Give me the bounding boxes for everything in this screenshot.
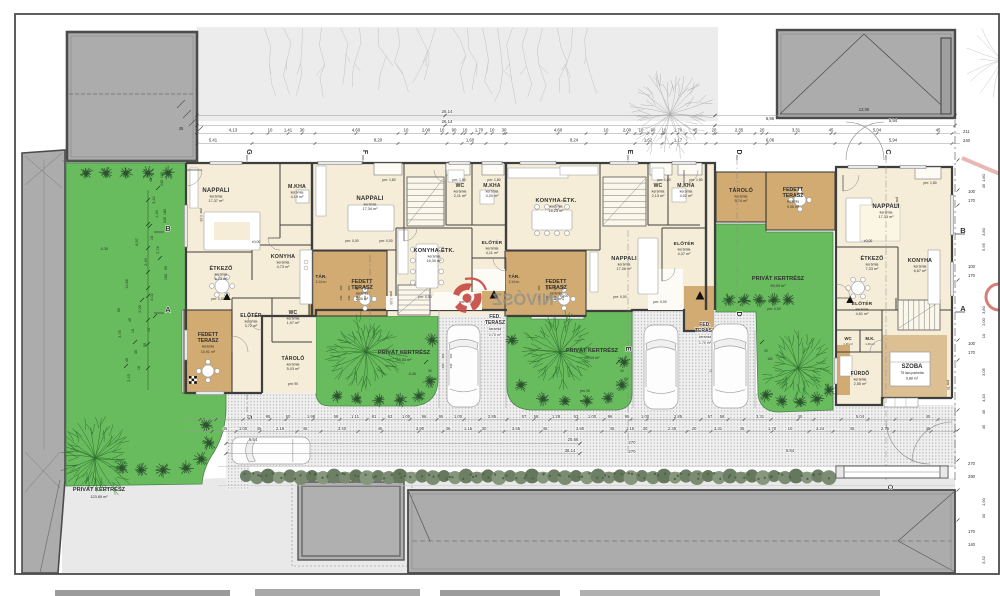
- svg-text:E: E: [624, 347, 631, 352]
- svg-text:kerámia: kerámia: [210, 194, 223, 198]
- svg-text:100: 100: [561, 285, 565, 290]
- svg-text:±0,00: ±0,00: [864, 239, 873, 243]
- svg-text:100: 100: [968, 189, 976, 194]
- svg-text:1,40: 1,40: [155, 210, 159, 217]
- svg-text:1,11: 1,11: [351, 414, 360, 419]
- svg-text:C: C: [884, 149, 891, 154]
- svg-text:170: 170: [968, 350, 976, 355]
- svg-text:1,80: 1,80: [981, 173, 986, 182]
- svg-text:±0,00: ±0,00: [252, 240, 261, 244]
- svg-text:SZOBA: SZOBA: [902, 364, 924, 370]
- svg-text:2,11 m²: 2,11 m²: [454, 194, 467, 198]
- svg-text:pm: 0,00: pm: 0,00: [767, 307, 780, 311]
- svg-text:pm: 0,00: pm: 0,00: [345, 239, 358, 243]
- svg-text:1,70 m²: 1,70 m²: [699, 341, 712, 345]
- svg-text:10: 10: [131, 329, 135, 333]
- svg-text:1,41: 1,41: [284, 128, 293, 133]
- svg-text:45: 45: [125, 358, 129, 362]
- svg-text:90: 90: [764, 349, 768, 353]
- svg-text:PRIVÁT KERTRÉSZ: PRIVÁT KERTRÉSZ: [566, 346, 619, 354]
- svg-text:TÁR.: TÁR.: [315, 273, 326, 280]
- svg-text:100: 100: [363, 285, 367, 290]
- svg-text:ÉTKEZŐ: ÉTKEZŐ: [209, 264, 232, 272]
- svg-text:WC: WC: [456, 183, 465, 189]
- svg-text:10: 10: [639, 128, 644, 133]
- svg-text:100: 100: [553, 285, 557, 290]
- svg-text:kerámia: kerámia: [854, 377, 867, 381]
- svg-text:30: 30: [482, 426, 487, 431]
- svg-text:4,37 m²: 4,37 m²: [678, 252, 692, 256]
- svg-text:45: 45: [850, 426, 855, 431]
- svg-text:F: F: [361, 150, 368, 155]
- svg-text:KONYHA: KONYHA: [271, 254, 296, 260]
- svg-text:FÜRDŐ: FÜRDŐ: [851, 370, 870, 377]
- svg-text:150: 150: [164, 274, 168, 280]
- svg-text:10: 10: [981, 333, 986, 338]
- svg-text:pm: 1,80: pm: 1,80: [382, 178, 395, 182]
- svg-text:90: 90: [452, 128, 457, 133]
- svg-text:pm: 1,80: pm: 1,80: [452, 178, 465, 182]
- svg-text:58: 58: [534, 414, 539, 419]
- svg-text:kerámia: kerámia: [699, 335, 711, 339]
- svg-text:10: 10: [662, 128, 667, 133]
- svg-text:WC: WC: [289, 310, 298, 316]
- svg-text:2,14 m²: 2,14 m²: [509, 280, 520, 284]
- svg-text:45: 45: [798, 414, 803, 419]
- svg-text:D: D: [735, 311, 742, 316]
- svg-text:95: 95: [266, 414, 271, 419]
- svg-text:M.KHA: M.KHA: [483, 183, 501, 189]
- svg-text:1,70: 1,70: [768, 426, 777, 431]
- svg-text:TERASZ: TERASZ: [783, 193, 805, 199]
- svg-text:M.K.: M.K.: [865, 336, 874, 341]
- svg-text:240: 240: [355, 295, 359, 300]
- svg-text:4,73 m²: 4,73 m²: [277, 265, 291, 269]
- svg-text:150: 150: [767, 357, 773, 361]
- svg-text:pm: 1,80: pm: 1,80: [689, 178, 702, 182]
- svg-text:2,19: 2,19: [276, 426, 285, 431]
- svg-text:1,90: 1,90: [981, 497, 986, 506]
- svg-text:2,76: 2,76: [156, 246, 160, 253]
- svg-text:3,31: 3,31: [792, 128, 801, 133]
- svg-text:10: 10: [440, 128, 445, 133]
- svg-text:C: C: [886, 484, 893, 489]
- svg-text:NIVÓSZ: NIVÓSZ: [492, 290, 553, 309]
- svg-text:100: 100: [968, 341, 976, 346]
- svg-text:kerámia: kerámia: [678, 247, 691, 251]
- svg-text:100: 100: [545, 285, 549, 290]
- svg-text:30: 30: [643, 426, 648, 431]
- svg-text:2,40: 2,40: [144, 258, 148, 265]
- svg-text:58: 58: [720, 414, 725, 419]
- svg-text:26,14: 26,14: [442, 119, 453, 124]
- svg-text:pm: 90: pm: 90: [895, 197, 899, 207]
- svg-text:3,31: 3,31: [756, 414, 765, 419]
- svg-text:kerámia: kerámia: [486, 189, 499, 193]
- svg-text:9,88 m²: 9,88 m²: [906, 377, 919, 381]
- svg-text:27: 27: [247, 414, 252, 419]
- svg-text:pm: 0,00: pm: 0,00: [653, 300, 666, 304]
- svg-text:pm: 90: pm: 90: [288, 382, 298, 386]
- svg-text:3,80: 3,80: [981, 305, 986, 314]
- svg-text:5,84: 5,84: [786, 448, 795, 453]
- svg-text:270: 270: [628, 440, 636, 445]
- svg-text:30: 30: [981, 513, 986, 518]
- svg-text:150: 150: [431, 377, 437, 381]
- svg-text:KONYHA-ÉTK.: KONYHA-ÉTK.: [413, 246, 454, 254]
- svg-text:ill.: ill.: [366, 346, 369, 350]
- svg-text:kerámia: kerámia: [202, 345, 214, 349]
- svg-text:3,55: 3,55: [512, 426, 521, 431]
- svg-text:5,94: 5,94: [889, 118, 898, 123]
- svg-text:20: 20: [692, 426, 697, 431]
- svg-text:2,00: 2,00: [981, 317, 986, 326]
- svg-text:kerámia: kerámia: [454, 189, 467, 193]
- svg-text:45: 45: [926, 414, 931, 419]
- svg-text:1,00: 1,00: [402, 414, 411, 419]
- svg-text:100: 100: [347, 285, 351, 290]
- svg-text:pm: 70: pm: 70: [946, 380, 950, 390]
- svg-text:4,00 m²: 4,00 m²: [486, 194, 500, 198]
- svg-text:211: 211: [963, 129, 970, 134]
- svg-text:kerámia: kerámia: [856, 307, 869, 311]
- svg-text:1,00: 1,00: [239, 426, 248, 431]
- svg-text:M.KHA: M.KHA: [288, 184, 306, 190]
- svg-text:TERASZ: TERASZ: [198, 338, 220, 344]
- svg-text:100: 100: [537, 285, 541, 290]
- svg-text:48,44 m²: 48,44 m²: [585, 356, 601, 360]
- svg-text:4,61 m²: 4,61 m²: [856, 312, 870, 316]
- svg-text:63: 63: [388, 414, 393, 419]
- svg-text:kerámia: kerámia: [652, 189, 665, 193]
- svg-text:pm: 1,80: pm: 1,80: [487, 178, 500, 182]
- svg-text:NAPPALI: NAPPALI: [202, 188, 229, 194]
- svg-text:96: 96: [608, 414, 613, 419]
- svg-text:17,37 m²: 17,37 m²: [209, 199, 225, 203]
- svg-text:kerámia: kerámia: [489, 327, 501, 331]
- svg-text:10: 10: [604, 128, 609, 133]
- svg-text:20: 20: [712, 128, 717, 133]
- svg-text:16,30 m²: 16,30 m²: [427, 259, 443, 263]
- svg-text:81: 81: [372, 414, 377, 419]
- svg-text:45: 45: [829, 128, 834, 133]
- svg-text:ÉTKEZŐ: ÉTKEZŐ: [860, 254, 883, 262]
- svg-text:1,60: 1,60: [466, 138, 475, 143]
- svg-text:20: 20: [760, 128, 765, 133]
- svg-text:A: A: [165, 305, 171, 314]
- svg-text:6,67 m²: 6,67 m²: [914, 269, 928, 273]
- svg-text:2,85: 2,85: [488, 414, 497, 419]
- svg-text:3,05: 3,05: [981, 367, 986, 376]
- svg-text:6,54: 6,54: [249, 437, 258, 442]
- svg-text:8,24: 8,24: [570, 138, 579, 143]
- svg-text:11,66: 11,66: [125, 279, 129, 288]
- svg-text:D: D: [735, 149, 742, 154]
- svg-text:pm: 0,00: pm: 0,00: [211, 297, 224, 301]
- svg-text:WC: WC: [844, 336, 852, 341]
- svg-text:kerámia: kerámia: [735, 194, 748, 198]
- svg-text:6,57: 6,57: [135, 238, 139, 245]
- svg-text:kerámia: kerámia: [287, 316, 300, 320]
- svg-text:kerámia: kerámia: [215, 272, 228, 276]
- svg-text:5,41: 5,41: [209, 138, 218, 143]
- svg-text:1,00: 1,00: [588, 414, 597, 419]
- svg-text:270: 270: [628, 449, 636, 454]
- svg-text:90: 90: [651, 128, 656, 133]
- svg-text:270: 270: [968, 461, 976, 466]
- svg-text:5,04: 5,04: [873, 128, 882, 133]
- svg-text:7,33 m²: 7,33 m²: [866, 267, 880, 271]
- svg-text:95: 95: [439, 414, 444, 419]
- svg-text:kerámia: kerámia: [618, 262, 631, 266]
- svg-text:95: 95: [625, 414, 630, 419]
- svg-text:16,23 m²: 16,23 m²: [549, 209, 565, 213]
- svg-text:3,42: 3,42: [152, 196, 156, 203]
- svg-text:3,90: 3,90: [576, 426, 585, 431]
- svg-text:25,66: 25,66: [568, 437, 579, 442]
- svg-text:290: 290: [968, 474, 976, 479]
- svg-text:4,60: 4,60: [554, 128, 563, 133]
- svg-text:1,62: 1,62: [644, 138, 653, 143]
- svg-text:57: 57: [708, 414, 713, 419]
- svg-text:45: 45: [149, 178, 153, 182]
- svg-text:10: 10: [463, 128, 468, 133]
- svg-text:NAPPALI: NAPPALI: [356, 196, 383, 202]
- svg-text:1,15: 1,15: [464, 426, 473, 431]
- svg-text:1,97 m²: 1,97 m²: [287, 321, 301, 325]
- svg-text:10: 10: [147, 328, 151, 332]
- svg-text:1,00: 1,00: [454, 414, 463, 419]
- svg-text:4,13: 4,13: [229, 128, 238, 133]
- svg-text:46: 46: [446, 426, 451, 431]
- svg-text:26,14: 26,14: [442, 109, 453, 114]
- svg-text:45: 45: [693, 128, 698, 133]
- svg-text:2,35: 2,35: [668, 426, 677, 431]
- svg-text:50: 50: [143, 343, 147, 347]
- svg-text:50,09 m²: 50,09 m²: [771, 284, 787, 288]
- svg-text:46,53 m²: 46,53 m²: [397, 358, 413, 362]
- svg-text:G: G: [245, 149, 252, 155]
- svg-text:kerámia: kerámia: [428, 254, 441, 258]
- svg-text:6,06: 6,06: [766, 138, 775, 143]
- svg-text:123,89 m²: 123,89 m²: [90, 495, 108, 499]
- svg-text:pm: 90: pm: 90: [580, 389, 590, 393]
- svg-text:2,00: 2,00: [623, 128, 632, 133]
- svg-text:17,33 m²: 17,33 m²: [879, 215, 895, 219]
- svg-text:5,95: 5,95: [981, 242, 986, 251]
- svg-text:16: 16: [150, 236, 154, 240]
- svg-text:TÁR.: TÁR.: [508, 273, 519, 280]
- svg-text:45: 45: [981, 183, 986, 188]
- svg-text:240: 240: [449, 363, 453, 368]
- svg-text:100: 100: [968, 264, 976, 269]
- svg-text:10,91 m²: 10,91 m²: [201, 350, 216, 354]
- svg-text:pm: 1,80: pm: 1,80: [923, 181, 936, 185]
- svg-text:M.KHA: M.KHA: [677, 183, 695, 189]
- svg-text:pm: 1,80: pm: 1,80: [657, 178, 670, 182]
- svg-text:ELŐTÉR: ELŐTÉR: [240, 311, 262, 319]
- svg-text:50: 50: [286, 414, 291, 419]
- svg-text:-0,30: -0,30: [100, 247, 108, 251]
- svg-text:1,70 m²: 1,70 m²: [489, 333, 502, 337]
- svg-text:E: E: [626, 150, 633, 155]
- svg-text:240: 240: [363, 295, 367, 300]
- svg-text:45: 45: [179, 126, 184, 131]
- svg-text:PRIVÁT KERTRÉSZ: PRIVÁT KERTRÉSZ: [73, 485, 126, 493]
- svg-text:kerámia: kerámia: [287, 362, 300, 366]
- svg-text:38,14: 38,14: [565, 448, 576, 453]
- svg-text:90: 90: [117, 308, 121, 312]
- svg-text:4,19 m²: 4,19 m²: [291, 195, 305, 199]
- svg-text:NAPPALI: NAPPALI: [611, 256, 637, 262]
- svg-text:3,31: 3,31: [714, 426, 723, 431]
- svg-text:45: 45: [740, 426, 745, 431]
- svg-text:pm: 0,00: pm: 0,00: [379, 239, 392, 243]
- svg-text:1,70: 1,70: [475, 128, 484, 133]
- svg-text:pm: 0,00: pm: 0,00: [199, 208, 203, 221]
- svg-text:10: 10: [268, 128, 273, 133]
- svg-text:kerámia: kerámia: [787, 200, 799, 204]
- svg-text:170: 170: [968, 273, 976, 278]
- svg-text:10: 10: [404, 128, 409, 133]
- svg-text:2,10: 2,10: [127, 374, 131, 381]
- svg-text:16: 16: [137, 366, 141, 370]
- svg-text:2,13 m²: 2,13 m²: [652, 194, 666, 198]
- svg-text:3,80: 3,80: [981, 227, 986, 236]
- svg-text:3,72 m²: 3,72 m²: [245, 324, 259, 328]
- svg-text:9,05 m²: 9,05 m²: [787, 205, 800, 209]
- svg-text:3,40: 3,40: [338, 426, 347, 431]
- svg-text:140: 140: [968, 542, 976, 547]
- svg-text:45: 45: [936, 128, 941, 133]
- svg-text:90: 90: [164, 266, 168, 270]
- svg-text:100: 100: [355, 285, 359, 290]
- svg-text:12,00: 12,00: [859, 107, 870, 112]
- svg-text:5,03 m²: 5,03 m²: [287, 367, 301, 371]
- svg-text:100: 100: [339, 285, 343, 290]
- svg-text:kerámia: kerámia: [291, 190, 304, 194]
- svg-text:10: 10: [788, 426, 793, 431]
- svg-text:4,60: 4,60: [352, 128, 361, 133]
- svg-text:4,02 m²: 4,02 m²: [680, 194, 694, 198]
- svg-text:kerámia: kerámia: [866, 262, 879, 266]
- svg-text:90: 90: [428, 369, 432, 373]
- svg-text:75 lam.parketta: 75 lam.parketta: [900, 371, 923, 375]
- svg-text:30: 30: [300, 128, 305, 133]
- svg-text:45: 45: [128, 318, 132, 322]
- svg-text:45: 45: [981, 424, 986, 429]
- svg-text:2,00: 2,00: [138, 305, 142, 312]
- svg-text:KONYHA-ÉTK.: KONYHA-ÉTK.: [535, 196, 576, 204]
- svg-text:45: 45: [223, 426, 228, 431]
- svg-text:3,24: 3,24: [816, 426, 825, 431]
- svg-text:2,55 m²: 2,55 m²: [854, 382, 868, 386]
- svg-text:pm: 0,00: pm: 0,00: [389, 291, 393, 304]
- svg-text:B: B: [165, 224, 171, 233]
- svg-text:1,17: 1,17: [674, 138, 683, 143]
- svg-text:WC: WC: [654, 183, 663, 189]
- svg-text:2,35: 2,35: [735, 128, 744, 133]
- svg-text:1,16 m²: 1,16 m²: [843, 342, 853, 346]
- svg-text:kerámia: kerámia: [680, 189, 693, 193]
- svg-text:45: 45: [543, 426, 548, 431]
- svg-text:kerámia: kerámia: [356, 292, 368, 296]
- svg-text:240: 240: [347, 295, 351, 300]
- svg-text:90: 90: [620, 369, 624, 373]
- svg-text:TERASZ: TERASZ: [485, 320, 505, 326]
- svg-text:5,04: 5,04: [856, 414, 865, 419]
- svg-text:2,75: 2,75: [881, 426, 890, 431]
- svg-text:30: 30: [502, 128, 507, 133]
- svg-text:5,74 m²: 5,74 m²: [735, 199, 749, 203]
- svg-text:1,28: 1,28: [552, 414, 561, 419]
- svg-text:3,76: 3,76: [118, 330, 122, 337]
- svg-text:17,34 m²: 17,34 m²: [363, 207, 379, 211]
- svg-text:170: 170: [968, 198, 976, 203]
- svg-text:240: 240: [441, 363, 445, 368]
- svg-text:100: 100: [449, 353, 453, 358]
- svg-text:-0,30: -0,30: [408, 372, 416, 376]
- svg-text:TÁROLÓ: TÁROLÓ: [729, 186, 753, 194]
- svg-text:PRIVÁT KERTRÉSZ: PRIVÁT KERTRÉSZ: [752, 274, 805, 282]
- svg-text:kerámia: kerámia: [914, 264, 927, 268]
- svg-text:TÁROLÓ: TÁROLÓ: [281, 354, 304, 362]
- svg-text:4,11 m²: 4,11 m²: [486, 251, 499, 255]
- svg-text:10: 10: [490, 128, 495, 133]
- svg-text:240: 240: [163, 217, 167, 223]
- svg-text:240: 240: [339, 295, 343, 300]
- svg-text:2,14 m²: 2,14 m²: [316, 280, 327, 284]
- svg-text:5,94: 5,94: [889, 138, 898, 143]
- svg-text:2,02: 2,02: [150, 293, 154, 300]
- svg-text:240: 240: [561, 295, 565, 300]
- svg-text:45: 45: [378, 426, 383, 431]
- svg-text:45: 45: [610, 426, 615, 431]
- svg-text:kerámia: kerámia: [364, 202, 377, 206]
- svg-text:pm: 0,00: pm: 0,00: [613, 295, 626, 299]
- svg-text:4,43: 4,43: [981, 393, 986, 402]
- svg-text:kerámia: kerámia: [245, 319, 258, 323]
- svg-text:1,70: 1,70: [674, 128, 683, 133]
- svg-text:kerámia: kerámia: [277, 260, 290, 264]
- svg-text:17,06 m²: 17,06 m²: [617, 267, 633, 271]
- svg-text:45: 45: [303, 426, 308, 431]
- svg-text:45: 45: [981, 409, 986, 414]
- svg-text:180: 180: [163, 209, 167, 215]
- svg-text:100: 100: [160, 172, 164, 178]
- svg-text:kerámia: kerámia: [486, 246, 499, 250]
- svg-text:2,00: 2,00: [422, 128, 431, 133]
- svg-text:KONYHA: KONYHA: [908, 258, 933, 264]
- svg-text:8,20: 8,20: [374, 138, 383, 143]
- svg-text:240: 240: [963, 138, 971, 143]
- svg-text:58: 58: [334, 414, 339, 419]
- svg-text:96: 96: [422, 414, 427, 419]
- svg-text:170: 170: [968, 529, 976, 534]
- svg-text:pm: 0,00: pm: 0,00: [418, 295, 431, 299]
- svg-text:45: 45: [134, 350, 138, 354]
- svg-text:240: 240: [160, 180, 164, 186]
- svg-text:kerámia: kerámia: [550, 204, 563, 208]
- svg-text:6,96: 6,96: [766, 116, 775, 121]
- svg-text:3,32: 3,32: [981, 555, 986, 564]
- svg-text:100: 100: [441, 353, 445, 358]
- svg-text:1,16 m²: 1,16 m²: [865, 342, 875, 346]
- svg-text:8,73 m²: 8,73 m²: [215, 277, 229, 281]
- svg-text:57: 57: [522, 414, 527, 419]
